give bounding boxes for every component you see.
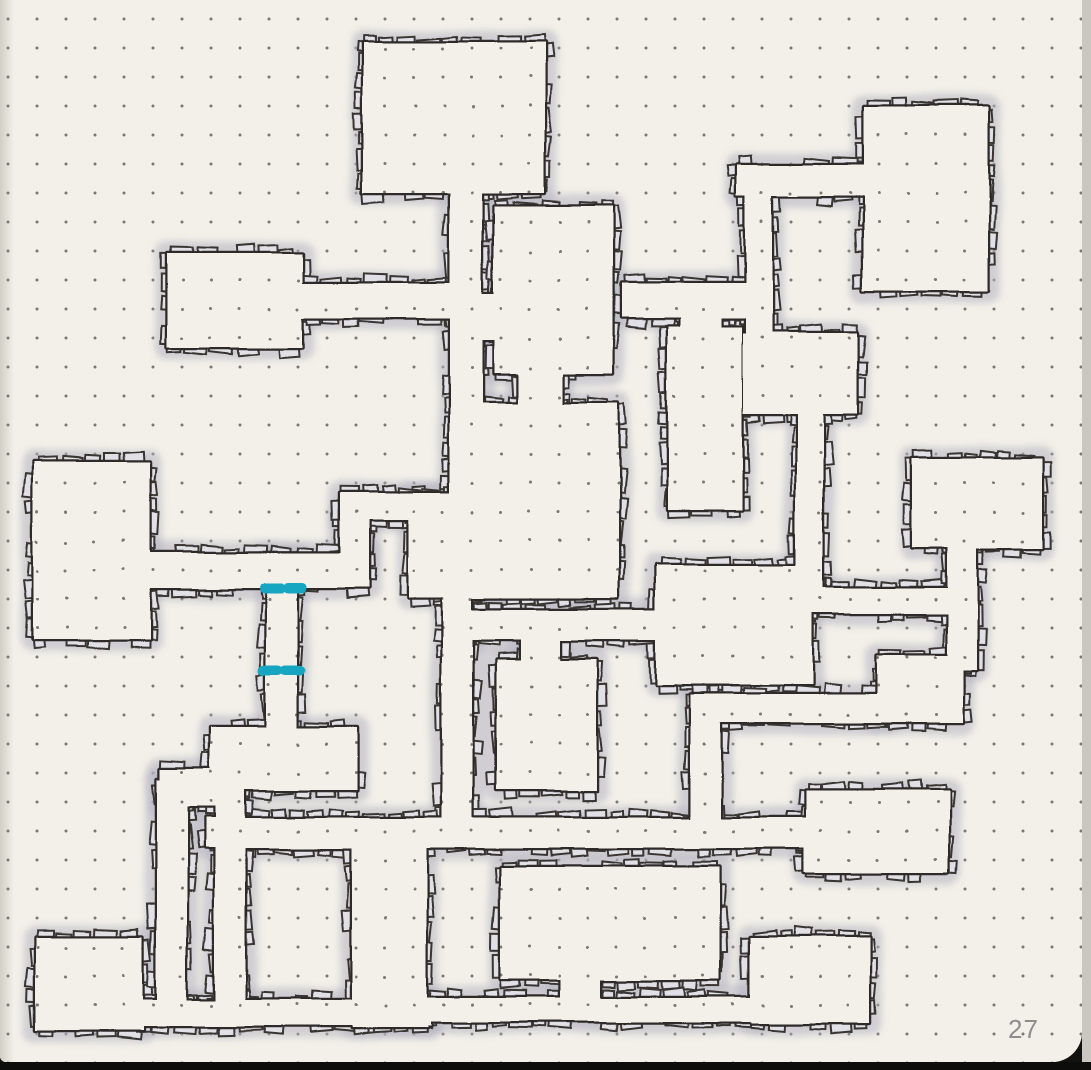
- scanned-notebook-scene: 27: [0, 0, 1091, 1070]
- page-right-edge: [1082, 0, 1091, 1070]
- scan-bottom-edge: [0, 1062, 1091, 1070]
- page-number: 27: [1008, 1014, 1039, 1045]
- notebook-page: 27: [0, 0, 1082, 1062]
- dungeon-map: [0, 0, 1082, 1062]
